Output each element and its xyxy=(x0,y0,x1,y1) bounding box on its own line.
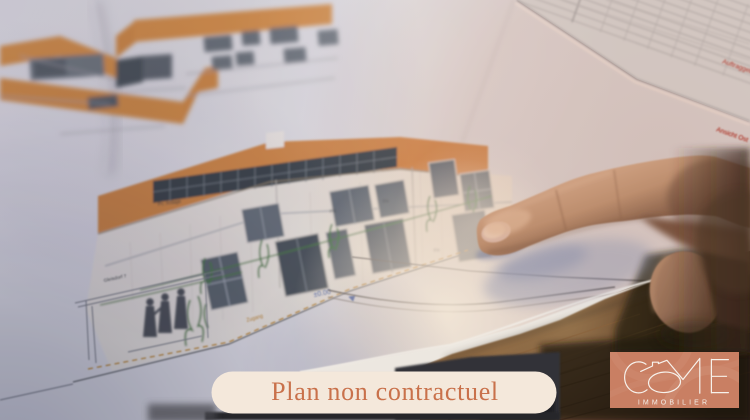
svg-text:IMMOBILIER: IMMOBILIER xyxy=(638,400,710,407)
svg-text:Plan non contractuel: Plan non contractuel xyxy=(271,377,499,406)
